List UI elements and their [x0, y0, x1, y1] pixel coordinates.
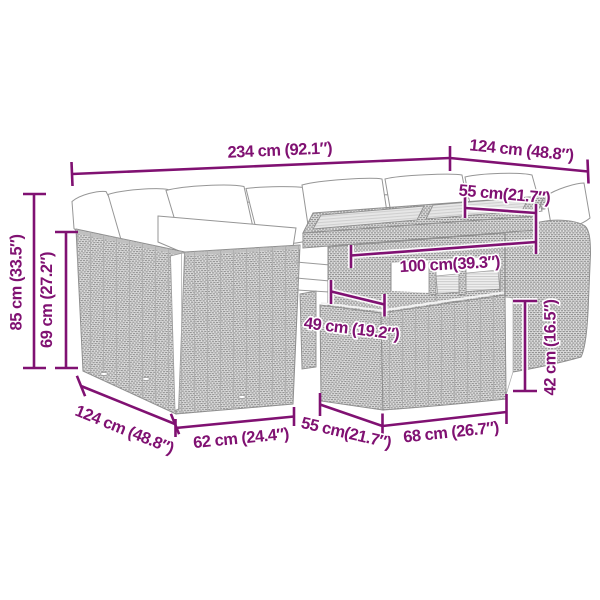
svg-text:234 cm (92.1″): 234 cm (92.1″) — [227, 139, 332, 161]
svg-text:69 cm (27.2″): 69 cm (27.2″) — [38, 252, 56, 348]
svg-text:55 cm(21.7″): 55 cm(21.7″) — [299, 414, 392, 452]
svg-text:85 cm (33.5″): 85 cm (33.5″) — [8, 235, 26, 331]
svg-text:62 cm (24.4″): 62 cm (24.4″) — [192, 425, 289, 452]
svg-text:42 cm (16.5″): 42 cm (16.5″) — [542, 300, 560, 396]
svg-text:124 cm (48.8″): 124 cm (48.8″) — [73, 402, 177, 458]
